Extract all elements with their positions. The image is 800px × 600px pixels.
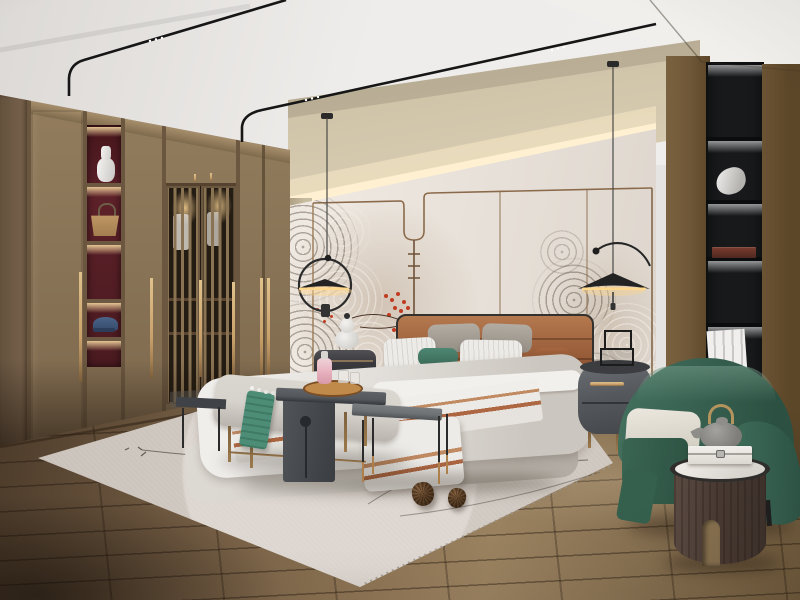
vignette-overlay xyxy=(0,0,800,600)
bedroom-render xyxy=(0,0,800,600)
